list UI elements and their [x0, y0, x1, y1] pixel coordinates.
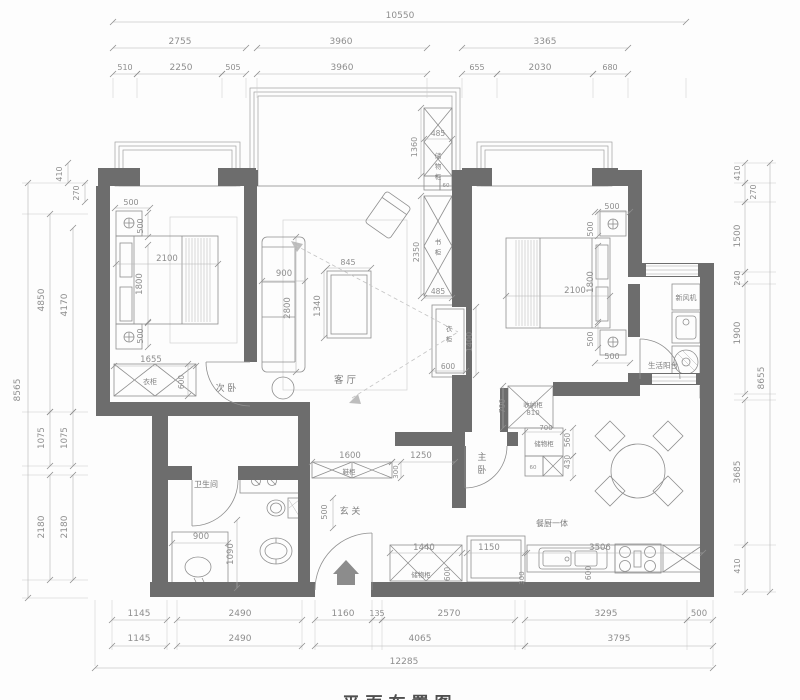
dim-br2-1655: 1655 — [140, 355, 162, 365]
floor-plan-page: 1055027553960336551022505053960655203068… — [0, 0, 800, 700]
dim-mid-560: 560 — [563, 433, 572, 448]
cabinet-label-shounagui: 收纳柜 — [523, 400, 543, 409]
dim-top-3960b: 3960 — [331, 63, 354, 73]
dim-mb-500v1: 500 — [586, 221, 595, 236]
dim-kt-300: 300 — [518, 571, 526, 584]
dim-right-240: 240 — [733, 270, 742, 285]
dim-kt-600b: 600 — [584, 566, 593, 581]
dim-top-2250: 2250 — [170, 63, 193, 73]
dim-top-655: 655 — [469, 63, 484, 72]
dim-right-270: 270 — [749, 184, 758, 199]
dim-bk-485b: 485 — [431, 287, 446, 296]
cabinet-label-shoe: 鞋柜 — [343, 467, 357, 476]
dim-bot-1160: 1160 — [332, 609, 355, 619]
dim-left-8565: 8565 — [13, 379, 23, 402]
dim-mb-500t: 500 — [604, 202, 619, 211]
dim-mid-60: 60 — [530, 465, 537, 471]
dim-right-3685: 3685 — [733, 461, 743, 484]
room-label-master: 主卧 — [477, 451, 486, 476]
dim-lv-900: 900 — [276, 269, 292, 279]
dim-bot-3795: 3795 — [608, 634, 631, 644]
dim-cab-485t: 485 — [431, 129, 446, 138]
dim-lv-2800: 2800 — [283, 297, 293, 319]
dim-bot-2490b: 2490 — [229, 634, 252, 644]
cabinet-label-bookcase: 书柜 — [435, 237, 442, 257]
dim-en-300: 300 — [392, 465, 400, 478]
dim-kt-1440: 1440 — [413, 543, 435, 553]
dim-mid-810: 810 — [526, 409, 539, 417]
dim-br2-1800: 1800 — [135, 273, 145, 295]
cabinet-label-kitchen-storage: 储物柜 — [411, 570, 431, 579]
dim-tv-600: 600 — [441, 362, 456, 371]
dim-top-2755: 2755 — [169, 37, 192, 47]
dim-left-1075a: 1075 — [37, 427, 47, 449]
dim-left-410: 410 — [55, 166, 64, 181]
dim-bot-4065: 4065 — [409, 634, 432, 644]
dim-kt-600a: 600 — [443, 567, 452, 582]
dim-br2-500v2: 500 — [136, 328, 145, 343]
dim-en-500: 500 — [320, 504, 329, 519]
dim-kt-3506: 3506 — [589, 543, 611, 553]
dim-bot-2490a: 2490 — [229, 609, 252, 619]
dim-bot-12285: 12285 — [390, 657, 419, 667]
dim-right-8655: 8655 — [757, 367, 767, 390]
dim-bot-1145b: 1145 — [128, 634, 151, 644]
room-label-bedroom2: 次 卧 — [216, 382, 237, 394]
dim-left-4170: 4170 — [60, 293, 70, 316]
dim-br2-2100: 2100 — [156, 254, 178, 264]
dim-mb-500v2: 500 — [586, 331, 595, 346]
cabinet-label-wardrobe2: 衣柜 — [143, 377, 157, 386]
dim-right-1900: 1900 — [733, 321, 743, 344]
dim-mb-2100: 2100 — [564, 286, 586, 296]
dim-mid-430: 430 — [563, 455, 572, 470]
dim-bot-1145a: 1145 — [128, 609, 151, 619]
dim-top-3960a: 3960 — [330, 37, 353, 47]
dim-ba-900: 900 — [193, 532, 209, 542]
dim-top-680: 680 — [602, 63, 617, 72]
dim-left-270: 270 — [72, 185, 81, 200]
dim-top-2030: 2030 — [529, 63, 552, 73]
dim-bot-2570: 2570 — [438, 609, 461, 619]
dim-bot-135: 135 — [369, 609, 384, 618]
dim-en-1250: 1250 — [410, 451, 432, 461]
dim-lv-845: 845 — [340, 258, 355, 267]
room-label-living: 客 厅 — [334, 374, 357, 386]
floor-plan-drawing: 1055027553960336551022505053960655203068… — [0, 0, 800, 700]
dim-bot-3295: 3295 — [595, 609, 618, 619]
dim-cab-60t: 60 — [443, 183, 450, 189]
dim-mid-790: 790 — [498, 399, 507, 414]
dim-br2-500v1: 500 — [136, 218, 145, 233]
dim-left-1075b: 1075 — [60, 427, 70, 449]
cabinet-label-storage560: 储物柜 — [534, 439, 554, 448]
dim-bot-500: 500 — [691, 609, 707, 619]
dim-lv-1340: 1340 — [313, 295, 323, 317]
dim-kt-1150: 1150 — [478, 543, 500, 553]
dim-left-4850: 4850 — [37, 288, 47, 311]
room-label-kitchen: 餐厨一体 — [536, 518, 568, 528]
dim-mid-700: 700 — [539, 424, 552, 432]
cabinet-label-top-storage: 储物柜 — [435, 151, 442, 181]
dim-top-total: 10550 — [386, 11, 415, 21]
dim-br2-500t: 500 — [123, 198, 138, 207]
dim-ba-1090: 1090 — [226, 543, 236, 565]
room-label-bath: 卫生间 — [194, 479, 218, 489]
dim-bk-2350: 2350 — [412, 242, 421, 262]
drawing-caption: 平面布置图 — [343, 693, 458, 700]
cabinet-label-tv-wardrobe: 衣柜 — [446, 324, 453, 344]
dim-cab-1360: 1360 — [410, 137, 419, 157]
room-label-entry: 玄 关 — [340, 505, 361, 517]
dim-en-1600: 1600 — [339, 451, 361, 461]
dim-top-505: 505 — [225, 63, 240, 72]
dim-right-410b: 410 — [733, 558, 742, 573]
dim-left-2180b: 2180 — [60, 515, 70, 538]
dim-right-410t: 410 — [733, 165, 742, 180]
dim-top-3365: 3365 — [534, 37, 557, 47]
dim-mb-500b: 500 — [604, 352, 619, 361]
dim-tv-1400: 1400 — [465, 332, 474, 352]
dim-right-1500: 1500 — [733, 224, 743, 247]
dim-left-2180a: 2180 — [37, 515, 47, 538]
dim-top-510: 510 — [117, 63, 132, 72]
appliance-label-freshair: 新风机 — [676, 293, 697, 302]
room-label-balcony: 生活阳台 — [648, 360, 678, 370]
dim-mb-1800: 1800 — [586, 271, 596, 293]
floor-plan-figure: 1055027553960336551022505053960655203068… — [0, 0, 800, 700]
dim-br2-600: 600 — [177, 375, 186, 390]
